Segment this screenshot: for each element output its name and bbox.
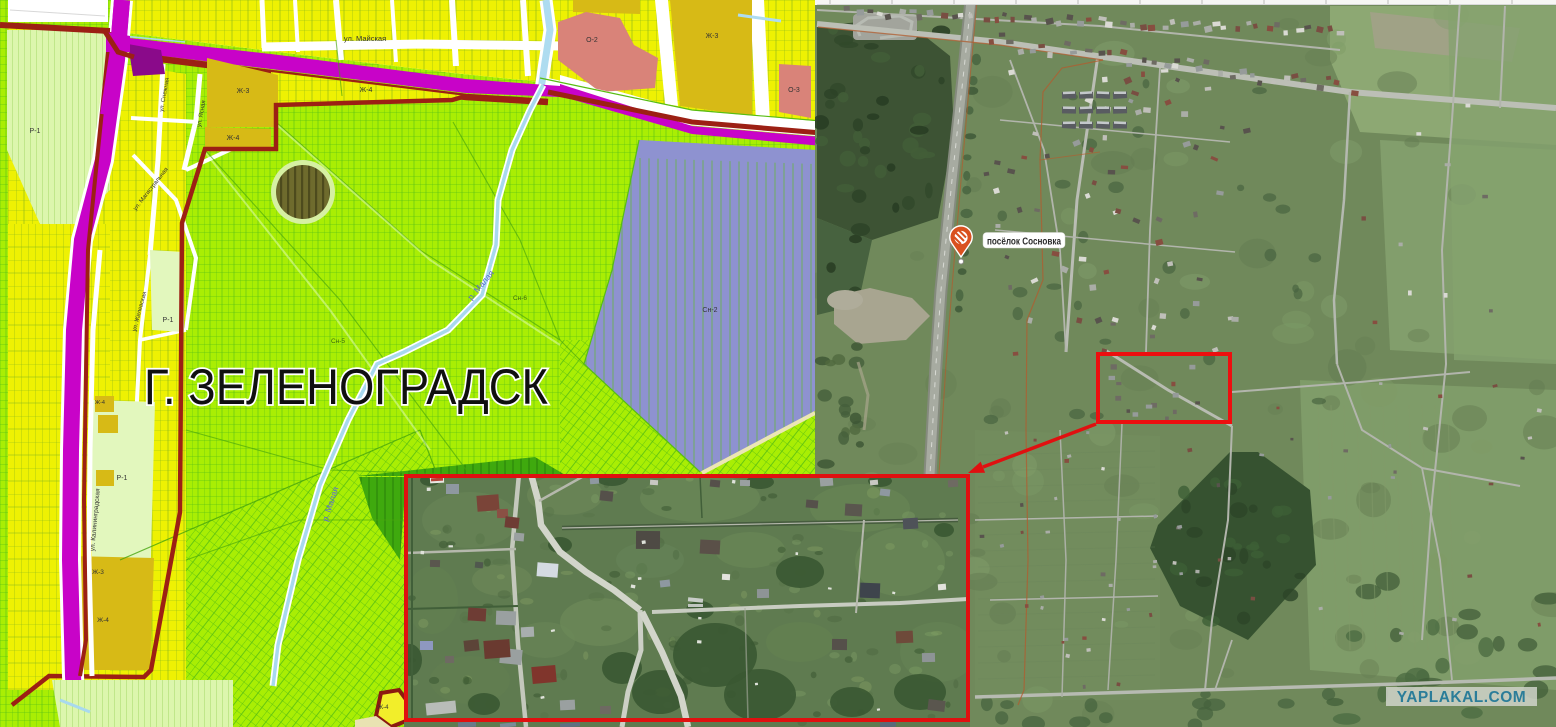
svg-text:ул. Майская: ул. Майская: [344, 34, 386, 43]
svg-text:Сн-6: Сн-6: [513, 295, 527, 302]
svg-text:Сн-5: Сн-5: [331, 338, 345, 345]
svg-text:О-3: О-3: [788, 87, 800, 94]
svg-text:Сн-2: Сн-2: [702, 307, 717, 314]
svg-text:Ж-4: Ж-4: [227, 135, 240, 142]
svg-text:YAPLAKAL.COM: YAPLAKAL.COM: [1397, 689, 1526, 706]
svg-text:Р-1: Р-1: [163, 317, 174, 324]
svg-text:Ж-4: Ж-4: [95, 400, 105, 406]
svg-text:Г. ЗЕЛЕНОГРАДСК: Г. ЗЕЛЕНОГРАДСК: [144, 359, 548, 415]
svg-text:О-2: О-2: [586, 37, 598, 44]
svg-text:Р-1: Р-1: [30, 128, 41, 135]
svg-text:посёлок Сосновка: посёлок Сосновка: [987, 236, 1061, 247]
svg-text:Ж-4: Ж-4: [378, 705, 390, 711]
svg-text:Ж-3: Ж-3: [706, 33, 719, 40]
svg-text:Ж-4: Ж-4: [97, 617, 109, 624]
svg-text:Ж-4: Ж-4: [360, 87, 373, 94]
svg-text:Ж-3: Ж-3: [92, 569, 104, 576]
svg-text:Ж-3: Ж-3: [237, 88, 250, 95]
svg-text:Р-1: Р-1: [117, 475, 128, 482]
